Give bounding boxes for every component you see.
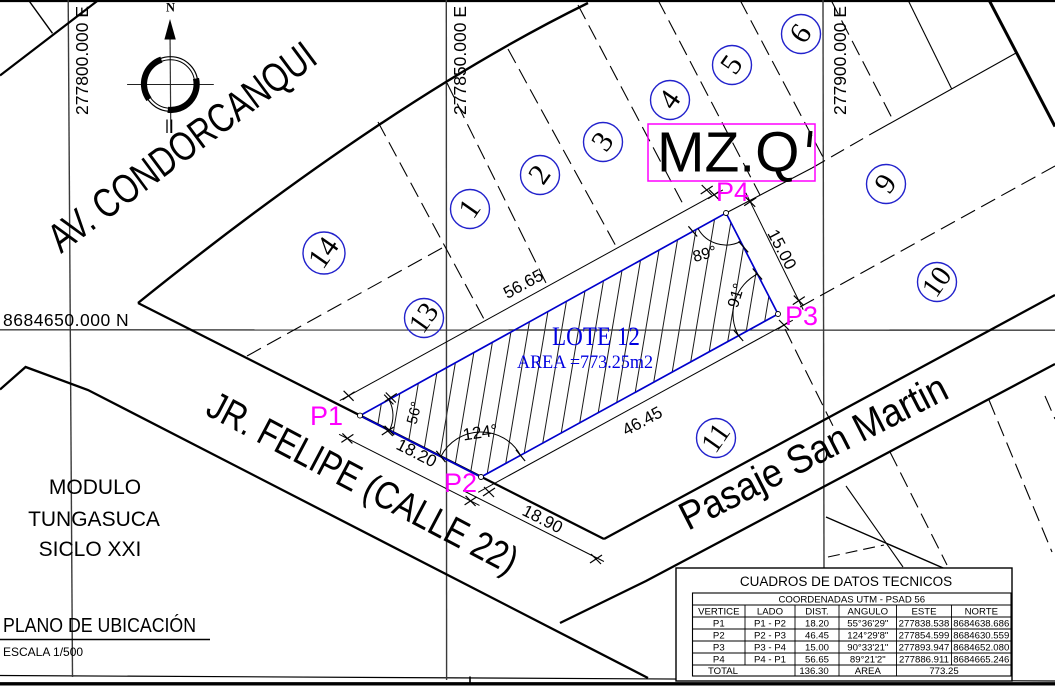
svg-text:ESTE: ESTE bbox=[911, 607, 936, 618]
svg-text:PLANO DE UBICACIÓN: PLANO DE UBICACIÓN bbox=[3, 614, 196, 637]
svg-text:NORTE: NORTE bbox=[965, 607, 998, 618]
svg-text:P3: P3 bbox=[713, 643, 725, 654]
svg-text:P2: P2 bbox=[713, 631, 725, 642]
svg-text:277800.000 E: 277800.000 E bbox=[72, 6, 92, 115]
svg-text:89°21'2": 89°21'2" bbox=[850, 655, 886, 666]
svg-text:TOTAL: TOTAL bbox=[708, 666, 739, 677]
svg-text:8684650.000 N: 8684650.000 N bbox=[3, 310, 129, 330]
svg-text:136.30: 136.30 bbox=[799, 666, 828, 677]
svg-text:8684652.080: 8684652.080 bbox=[953, 643, 1009, 654]
svg-text:124°29'8": 124°29'8" bbox=[847, 631, 888, 642]
svg-text:15.00: 15.00 bbox=[805, 643, 829, 654]
svg-text:8684630.559: 8684630.559 bbox=[953, 631, 1009, 642]
svg-text:AREA: AREA bbox=[855, 666, 882, 677]
svg-text:CUADROS DE DATOS TECNICOS: CUADROS DE DATOS TECNICOS bbox=[740, 574, 952, 589]
svg-text:46.45: 46.45 bbox=[805, 631, 829, 642]
svg-text:P3: P3 bbox=[785, 301, 818, 331]
svg-text:COORDENADAS UTM - PSAD 56: COORDENADAS UTM - PSAD 56 bbox=[778, 595, 925, 606]
svg-text:P4: P4 bbox=[713, 655, 725, 666]
svg-text:P1: P1 bbox=[713, 619, 725, 630]
svg-text:18.20: 18.20 bbox=[805, 619, 829, 630]
svg-text:N: N bbox=[166, 1, 175, 15]
svg-text:VERTICE: VERTICE bbox=[698, 607, 739, 618]
svg-text:8684665.246: 8684665.246 bbox=[953, 655, 1009, 666]
svg-text:LOTE 12: LOTE 12 bbox=[552, 322, 640, 351]
svg-text:P1: P1 bbox=[310, 401, 343, 431]
svg-text:SICLO XXI: SICLO XXI bbox=[39, 538, 142, 561]
svg-text:MZ.Q: MZ.Q bbox=[657, 121, 799, 185]
svg-text:P3 - P4: P3 - P4 bbox=[754, 643, 787, 654]
svg-text:AREA =773.25m2: AREA =773.25m2 bbox=[517, 352, 653, 373]
svg-text:277900.000 E: 277900.000 E bbox=[830, 6, 850, 115]
svg-text:277838.538: 277838.538 bbox=[899, 619, 950, 630]
svg-text:P2: P2 bbox=[444, 468, 477, 498]
svg-text:P1 - P2: P1 - P2 bbox=[754, 619, 786, 630]
svg-text:773.25: 773.25 bbox=[929, 666, 958, 677]
svg-text:277893.947: 277893.947 bbox=[899, 643, 950, 654]
svg-text:LADO: LADO bbox=[757, 607, 783, 618]
svg-text:90°33'21": 90°33'21" bbox=[847, 643, 888, 654]
svg-text:P2 - P3: P2 - P3 bbox=[754, 631, 786, 642]
svg-text:277850.000 E: 277850.000 E bbox=[450, 6, 470, 115]
svg-text:277854.599: 277854.599 bbox=[899, 631, 950, 642]
svg-text:ESCALA 1/500: ESCALA 1/500 bbox=[3, 645, 83, 659]
svg-text:8684638.686: 8684638.686 bbox=[953, 619, 1009, 630]
svg-text:ANGULO: ANGULO bbox=[848, 607, 889, 618]
svg-text:P4 - P1: P4 - P1 bbox=[754, 655, 786, 666]
svg-text:MODULO: MODULO bbox=[49, 476, 141, 499]
svg-text:56.65: 56.65 bbox=[805, 655, 829, 666]
svg-text:DIST.: DIST. bbox=[805, 607, 828, 618]
svg-text:277886.911: 277886.911 bbox=[899, 655, 949, 666]
svg-text:TUNGASUCA: TUNGASUCA bbox=[28, 508, 160, 531]
svg-text:55°36'29": 55°36'29" bbox=[847, 619, 888, 630]
